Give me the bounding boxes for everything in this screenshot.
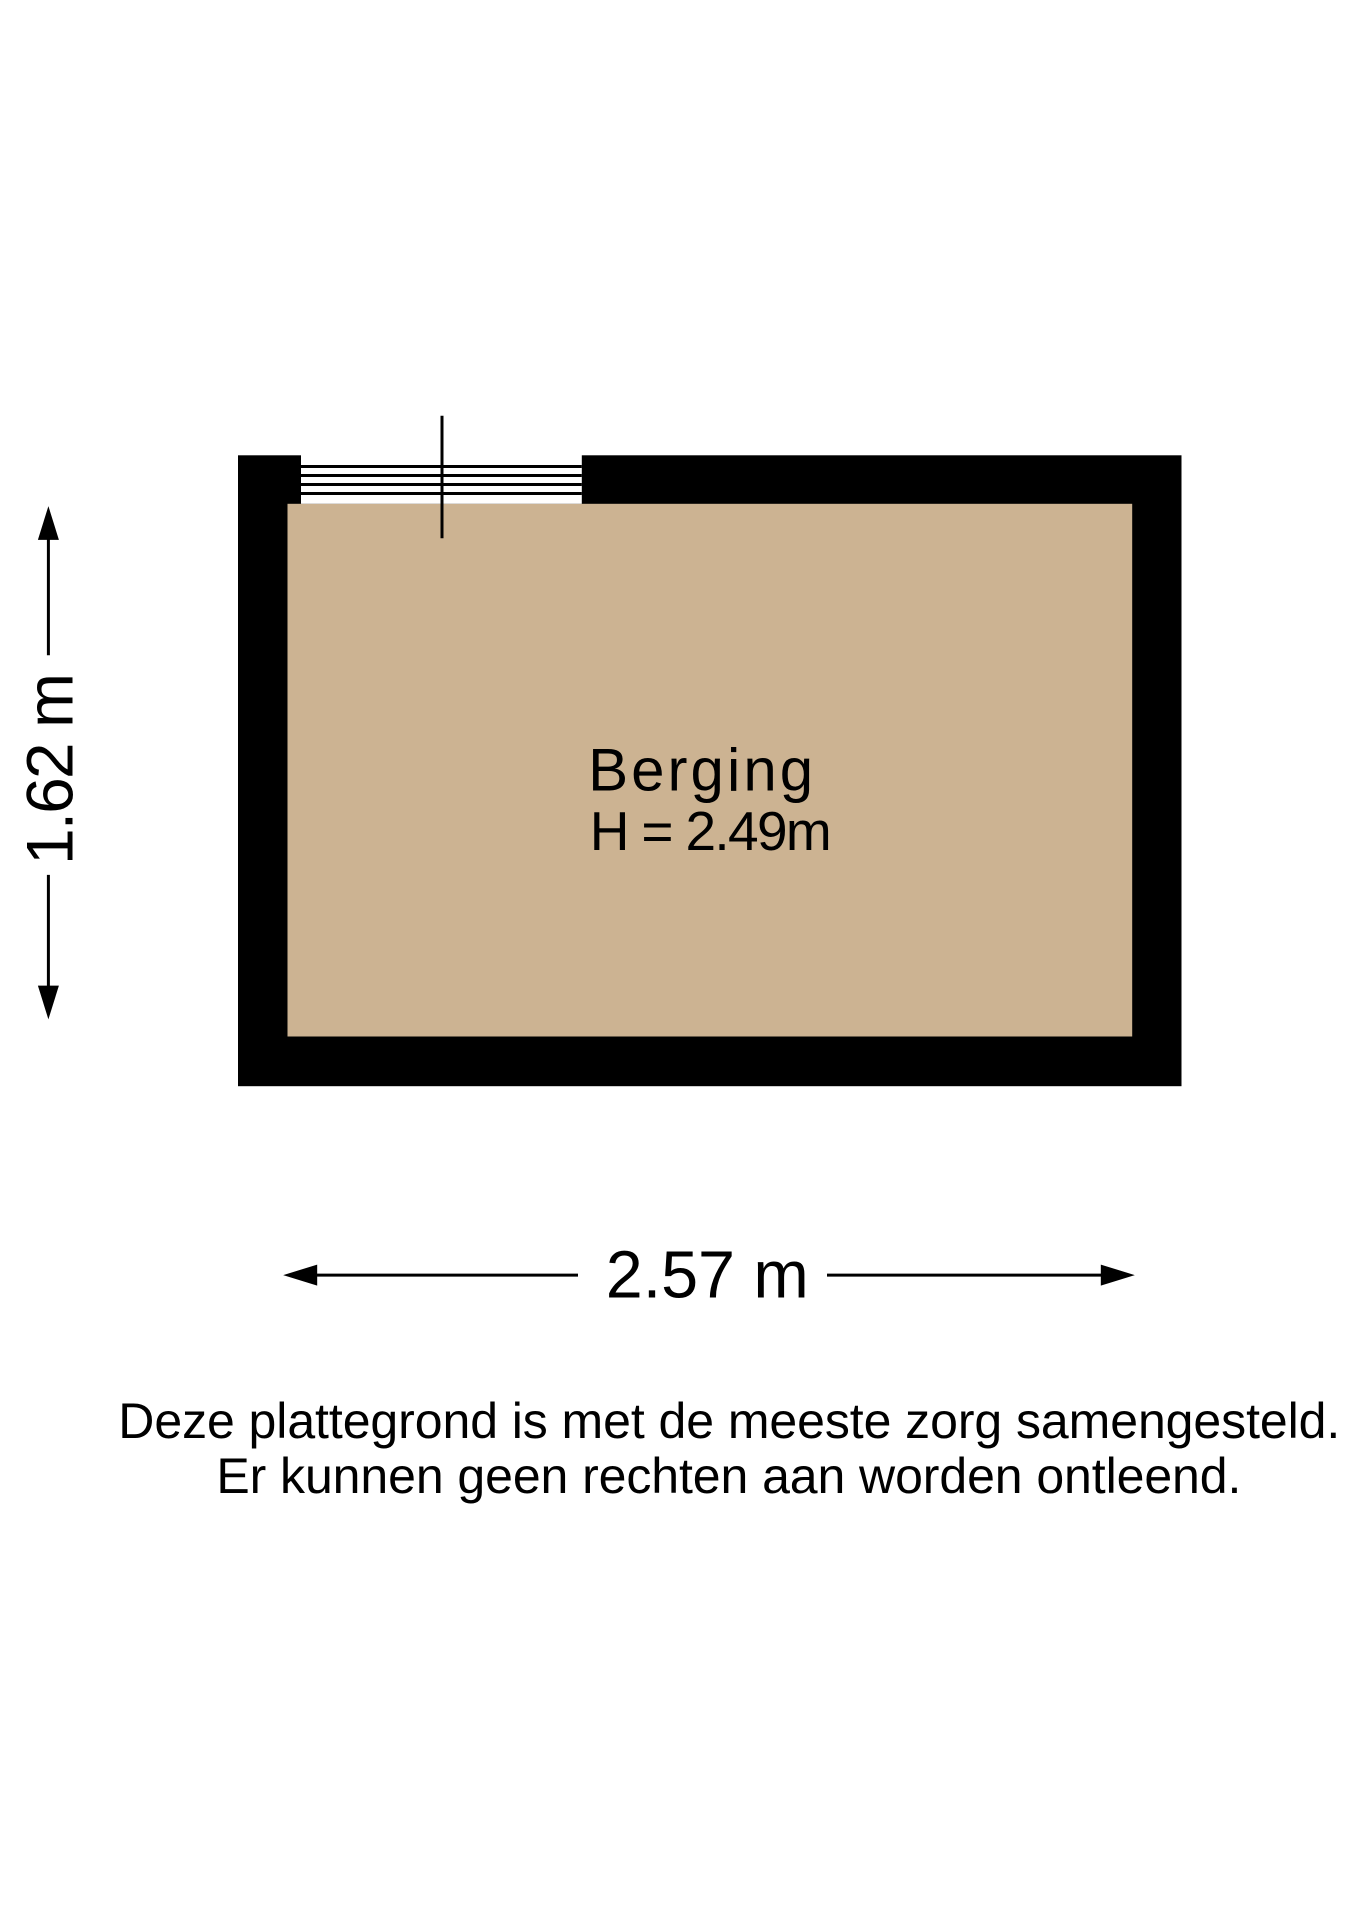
svg-text:2.57 m: 2.57 m — [606, 1239, 809, 1313]
svg-text:Berging: Berging — [588, 736, 813, 803]
svg-text:H = 2.49m: H = 2.49m — [590, 800, 832, 862]
svg-text:Er kunnen geen rechten aan wor: Er kunnen geen rechten aan worden ontlee… — [216, 1448, 1241, 1504]
svg-text:1.62 m: 1.62 m — [13, 673, 87, 865]
svg-text:Deze plattegrond is met de mee: Deze plattegrond is met de meeste zorg s… — [118, 1393, 1340, 1449]
